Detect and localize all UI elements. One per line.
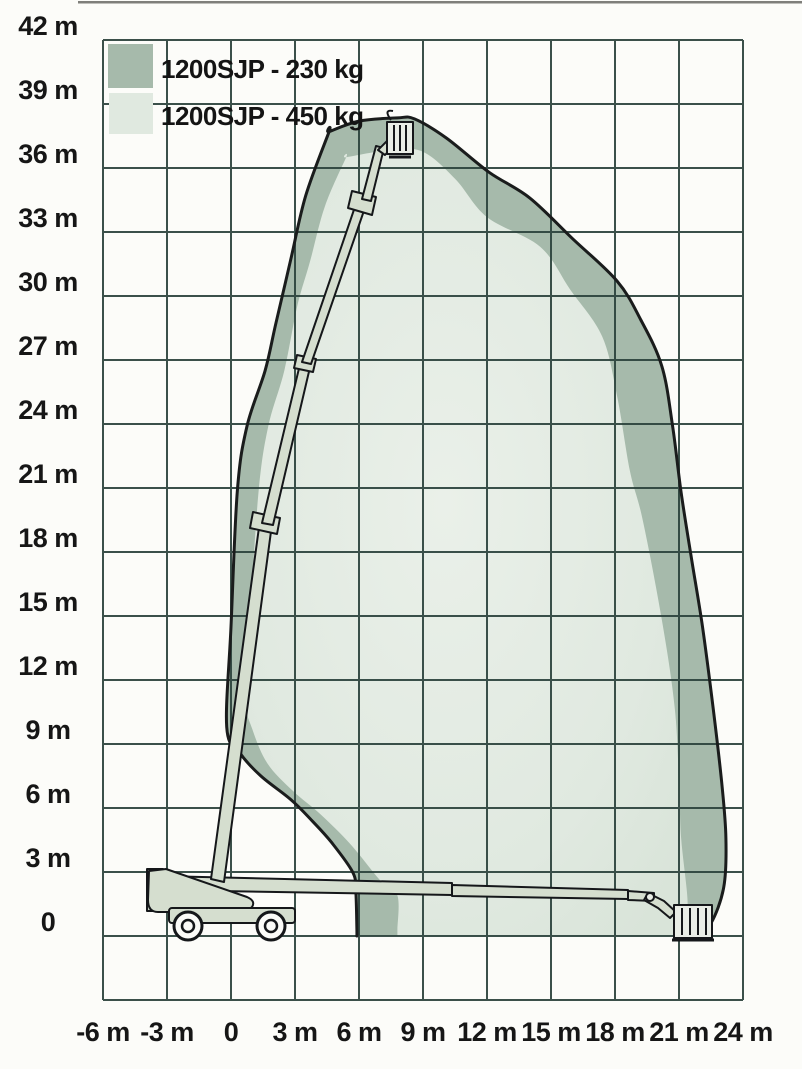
y-tick-label: 42 m [18, 11, 78, 41]
y-tick-label: 6 m [25, 779, 70, 809]
x-tick-label: 21 m [649, 1017, 709, 1047]
y-tick-label: 27 m [18, 331, 78, 361]
y-tick-label: 39 m [18, 75, 78, 105]
legend-label-230kg: 1200SJP - 230 kg [161, 54, 364, 84]
y-tick-label: 33 m [18, 203, 78, 233]
y-tick-label: 15 m [18, 587, 78, 617]
legend-swatch-450kg [109, 93, 153, 134]
platform-basket-lower [672, 905, 714, 940]
y-tick-label: 30 m [18, 267, 78, 297]
legend-label-450kg: 1200SJP - 450 kg [161, 101, 364, 131]
y-tick-label: 12 m [18, 651, 78, 681]
jib-lower-knuckle [646, 893, 654, 901]
x-tick-label: 3 m [272, 1017, 317, 1047]
x-tick-label: 15 m [521, 1017, 581, 1047]
envelope-chart: 42 m39 m36 m33 m30 m27 m24 m21 m18 m15 m… [0, 0, 802, 1069]
y-tick-label: 18 m [18, 523, 78, 553]
y-tick-label: 21 m [18, 459, 78, 489]
x-tick-label: 12 m [457, 1017, 517, 1047]
legend-swatch-230kg [108, 44, 153, 88]
x-tick-label: 18 m [585, 1017, 645, 1047]
scan-edge-artifact [78, 1, 802, 4]
wheel-front-hub [265, 920, 277, 932]
x-tick-label: 9 m [400, 1017, 445, 1047]
y-tick-label: 36 m [18, 139, 78, 169]
y-tick-label: 3 m [25, 843, 70, 873]
y-tick-label: 24 m [18, 395, 78, 425]
y-tick-label: 9 m [25, 715, 70, 745]
y-tick-label: 0 [41, 907, 56, 937]
x-tick-label: 0 [224, 1017, 239, 1047]
x-tick-label: 24 m [713, 1017, 773, 1047]
wheel-rear-hub [182, 920, 194, 932]
reach-diagram-page: 42 m39 m36 m33 m30 m27 m24 m21 m18 m15 m… [0, 0, 802, 1069]
x-tick-label: -3 m [140, 1017, 194, 1047]
x-tick-label: -6 m [76, 1017, 130, 1047]
x-tick-label: 6 m [336, 1017, 381, 1047]
